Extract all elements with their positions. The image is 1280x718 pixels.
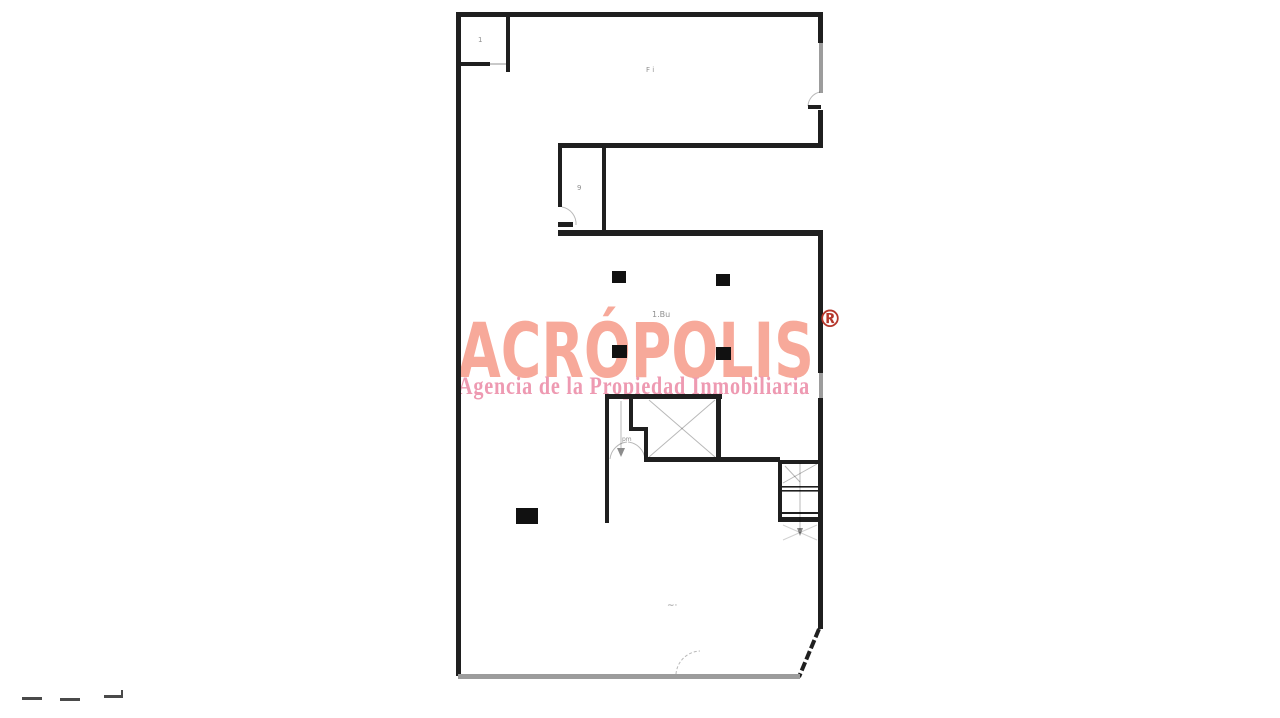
stair-arrowhead bbox=[617, 448, 625, 457]
entry-door-arc-bottom bbox=[676, 651, 700, 674]
wall-block-bottom bbox=[644, 457, 780, 462]
wall-block-left bbox=[605, 394, 609, 523]
label-lower-note: ~· bbox=[667, 601, 677, 611]
wall-block-top bbox=[605, 394, 722, 399]
wall-right-middle bbox=[818, 230, 823, 373]
wall-mid-upper bbox=[558, 143, 823, 148]
artifact-dash bbox=[60, 698, 80, 701]
agency-watermark: ACRÓPOLIS Agencia de la Propiedad Inmobi… bbox=[458, 305, 814, 400]
wall-left bbox=[456, 12, 461, 676]
entry-door-arc-right bbox=[808, 92, 820, 106]
interior-walls bbox=[456, 12, 823, 523]
registered-trademark-symbol: ® bbox=[818, 305, 842, 333]
label-center-note: 1.Bu bbox=[652, 310, 670, 319]
scan-artifact-dashes bbox=[22, 690, 123, 701]
scanned-floorplan-page: ACRÓPOLIS Agencia de la Propiedad Inmobi… bbox=[0, 0, 1280, 718]
wall-shaft-right bbox=[716, 397, 721, 462]
column-large bbox=[516, 508, 538, 524]
stair-door-arc-right bbox=[628, 442, 645, 459]
door-gap-tlroom bbox=[490, 63, 506, 65]
door-leaf-room2 bbox=[558, 222, 573, 227]
column bbox=[612, 345, 627, 358]
label-top-left-room: 1 bbox=[478, 36, 482, 44]
window-right-upper bbox=[819, 43, 823, 93]
wall-right-upper-b bbox=[818, 110, 823, 148]
artifact-tick bbox=[121, 690, 123, 696]
floor-plan-drawing: ACRÓPOLIS Agencia de la Propiedad Inmobi… bbox=[0, 0, 1280, 718]
column bbox=[612, 271, 626, 283]
column bbox=[716, 274, 730, 286]
door-leaf-right-upper bbox=[808, 105, 821, 109]
wall-tlroom-bottom bbox=[456, 62, 490, 66]
wall-stairbox-left bbox=[778, 460, 782, 522]
wall-chamfer-corner bbox=[799, 629, 819, 677]
wall-mid-lower bbox=[558, 230, 823, 236]
wall-block-L-vert1 bbox=[629, 397, 633, 431]
wall-room2-left bbox=[558, 143, 562, 207]
wall-right-upper bbox=[818, 12, 823, 43]
label-stair-note: pm bbox=[622, 436, 632, 443]
wall-bottom-storefront bbox=[458, 674, 800, 679]
wall-top bbox=[456, 12, 823, 17]
column bbox=[716, 347, 731, 360]
label-small-room: 9 bbox=[577, 184, 581, 192]
wall-tlroom-right bbox=[506, 12, 510, 72]
label-upper-hall: F i bbox=[646, 66, 654, 74]
artifact-dash bbox=[104, 695, 123, 698]
stairbox-hatch-2 bbox=[785, 466, 800, 482]
window-right-middle bbox=[819, 373, 823, 398]
artifact-dash bbox=[22, 697, 42, 700]
wall-room2-right bbox=[602, 143, 606, 236]
